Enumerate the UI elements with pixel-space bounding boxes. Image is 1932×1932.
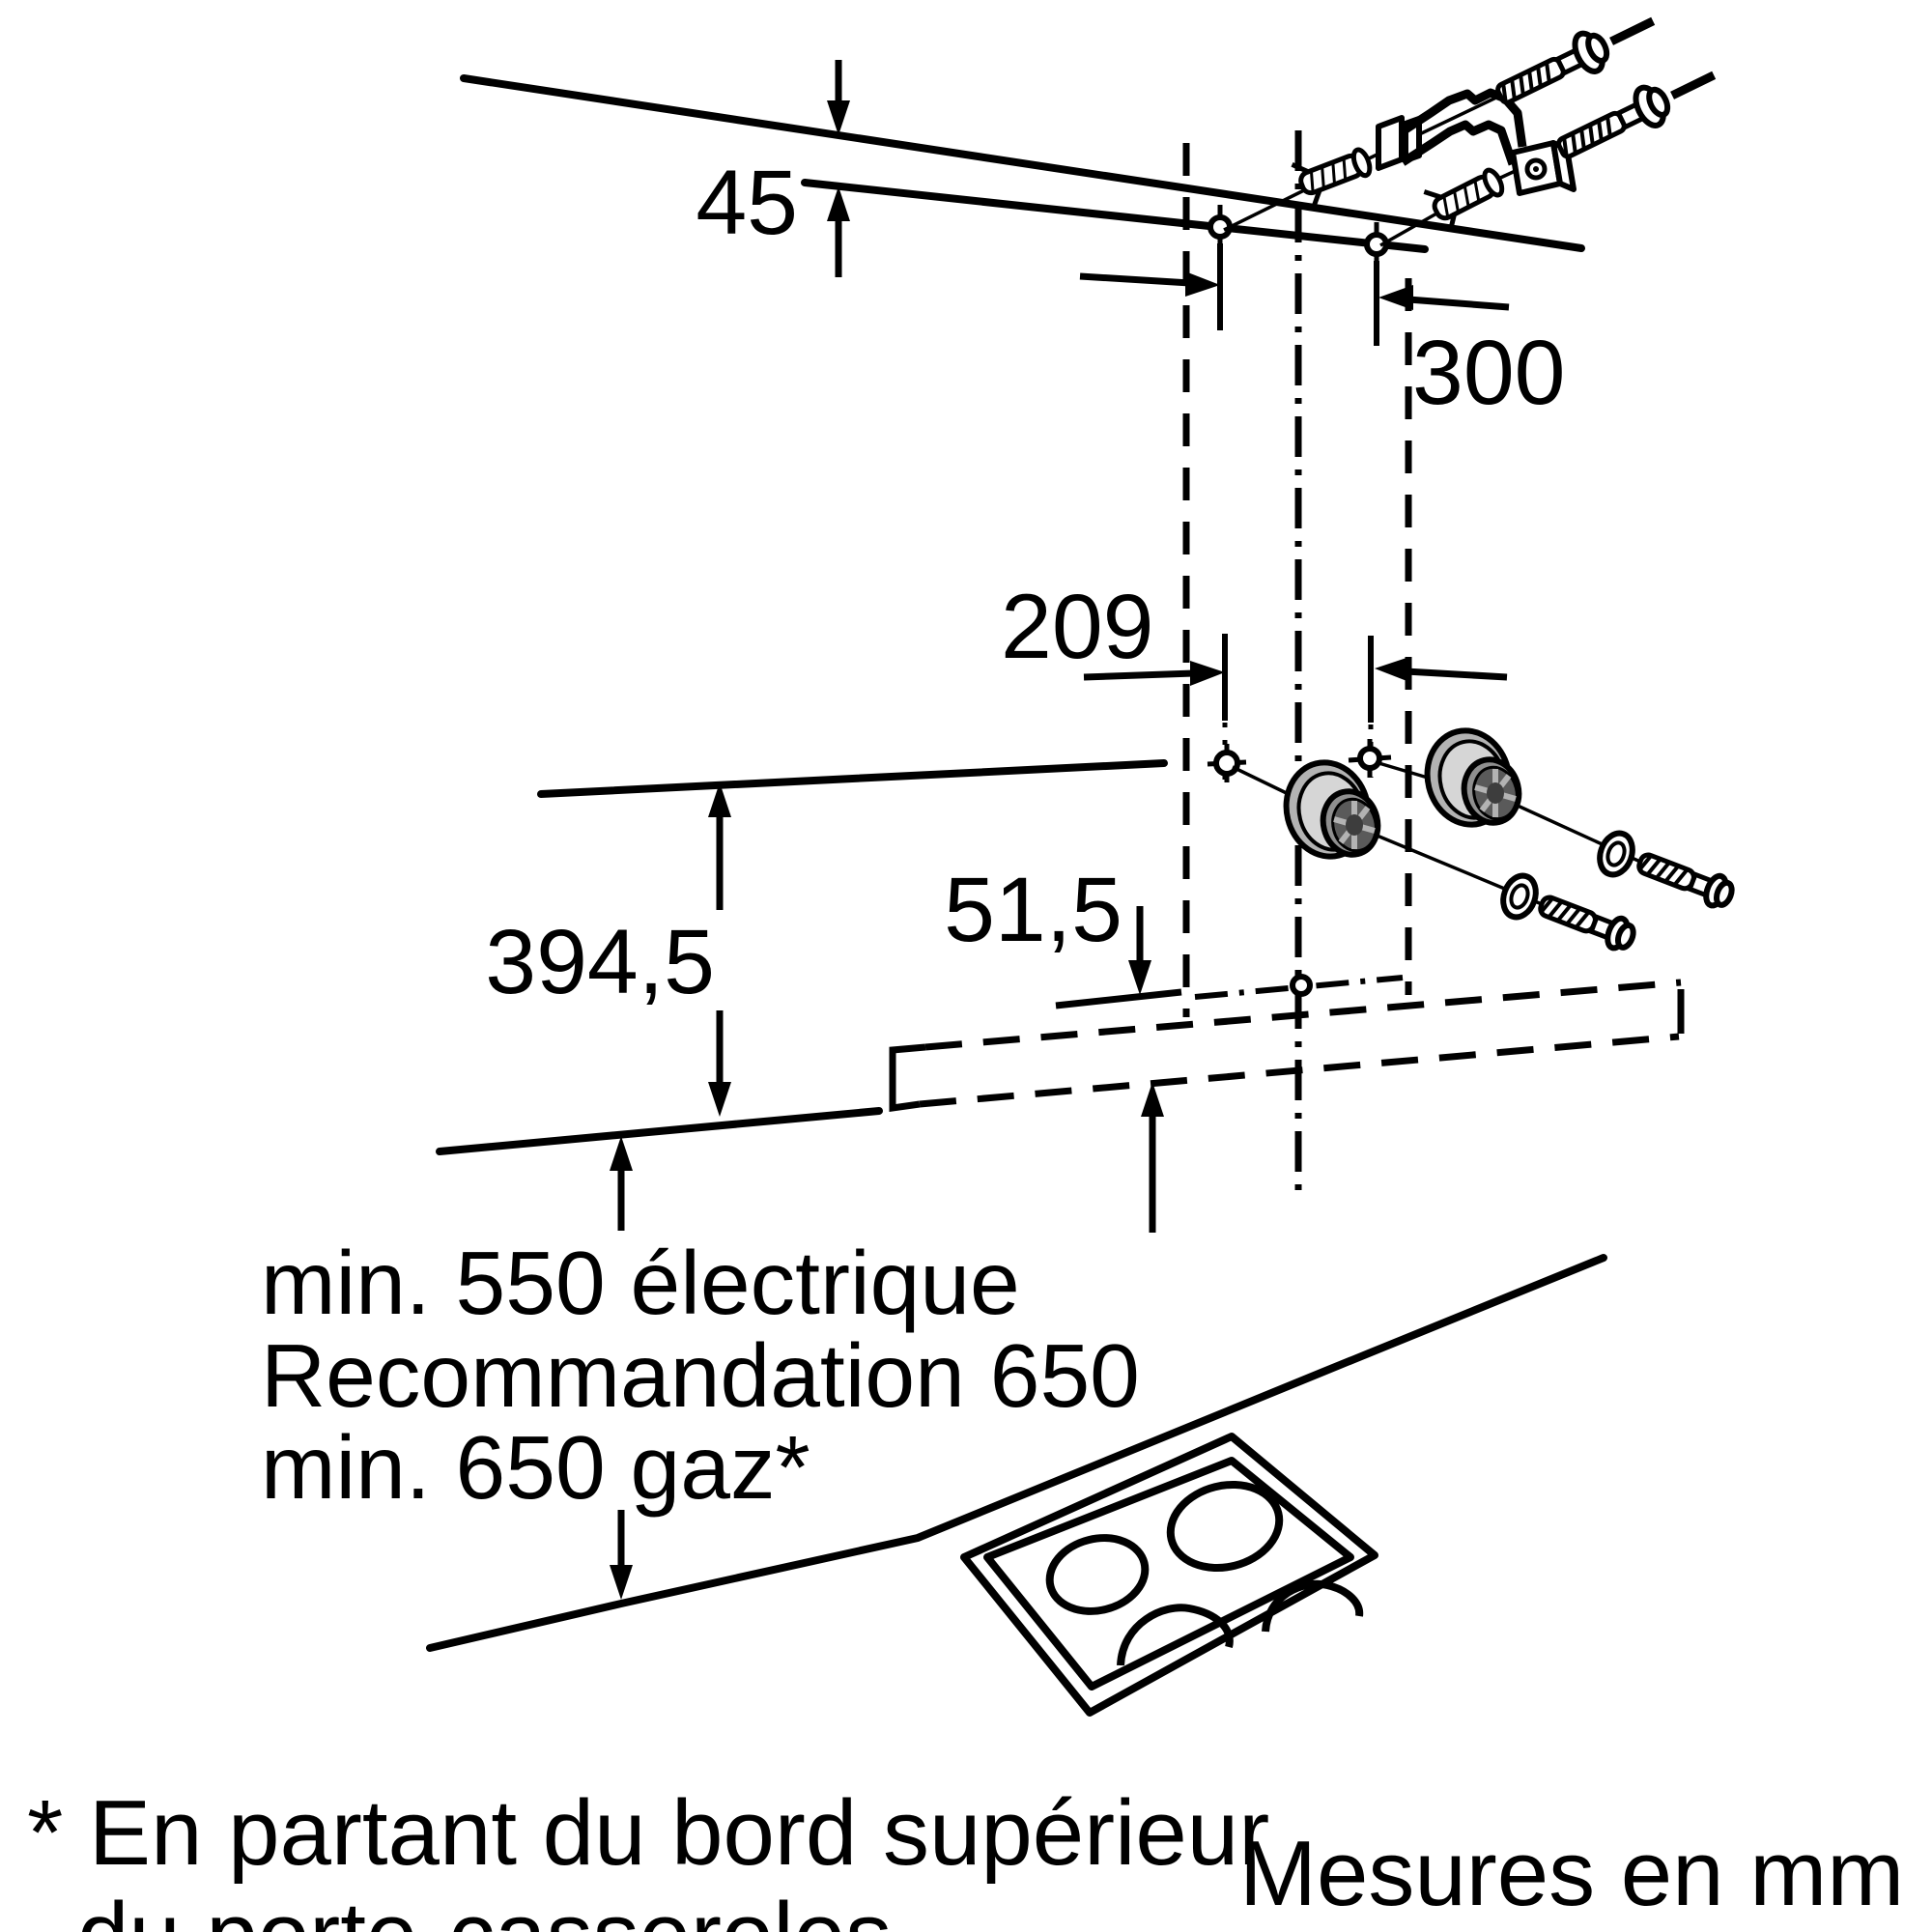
footnote-line-1: * En partant du bord supérieur — [27, 1781, 1269, 1885]
wall-anchor — [1293, 138, 1377, 208]
ceiling-line — [464, 78, 1581, 248]
installation-diagram: 45 300 209 394,5 — [0, 0, 1932, 1932]
hood-bottom-arrow — [1141, 1082, 1164, 1233]
dimension-394-5-label: 394,5 — [485, 911, 715, 1013]
dimension-209: 209 — [1001, 576, 1507, 723]
dimension-51-5-label: 51,5 — [944, 859, 1122, 961]
dimension-45-label: 45 — [696, 152, 798, 254]
mounting-screw — [1536, 890, 1637, 953]
washer — [1497, 871, 1541, 922]
clearance-line-3: min. 650 gaz* — [261, 1417, 810, 1518]
wall-line-bottom — [440, 1111, 879, 1151]
diagram-page: 45 300 209 394,5 — [0, 0, 1932, 1932]
dimension-300-label: 300 — [1412, 322, 1566, 424]
dimension-394-5: 394,5 — [485, 782, 731, 1117]
drill-hole — [1360, 749, 1379, 768]
wall-line-mid — [541, 763, 1164, 794]
hood-outline-left-bracket — [893, 1047, 925, 1108]
mounting-screw — [1634, 847, 1736, 911]
clearance-line-2: Recommandation 650 — [261, 1325, 1140, 1426]
clearance-line-1: min. 550 électrique — [261, 1233, 1020, 1333]
cooktop — [964, 1436, 1375, 1713]
drill-hole — [1216, 753, 1237, 774]
dimension-209-label: 209 — [1001, 576, 1154, 678]
footnote-line-2: du porte-casseroles — [77, 1884, 892, 1932]
units-note: Mesures en mm — [1239, 1822, 1904, 1925]
mounting-screw — [1552, 57, 1723, 168]
dimension-51-5: 51,5 — [944, 859, 1403, 1006]
drill-hole — [1293, 977, 1310, 994]
washer — [1594, 829, 1637, 879]
spacer-assembly — [1233, 722, 1736, 952]
hole-reference-line — [805, 183, 1425, 249]
dimension-300: 300 — [1080, 243, 1566, 424]
wall-anchor — [1424, 158, 1510, 233]
duct-spacer — [1417, 722, 1525, 833]
dimension-45: 45 — [696, 60, 850, 277]
